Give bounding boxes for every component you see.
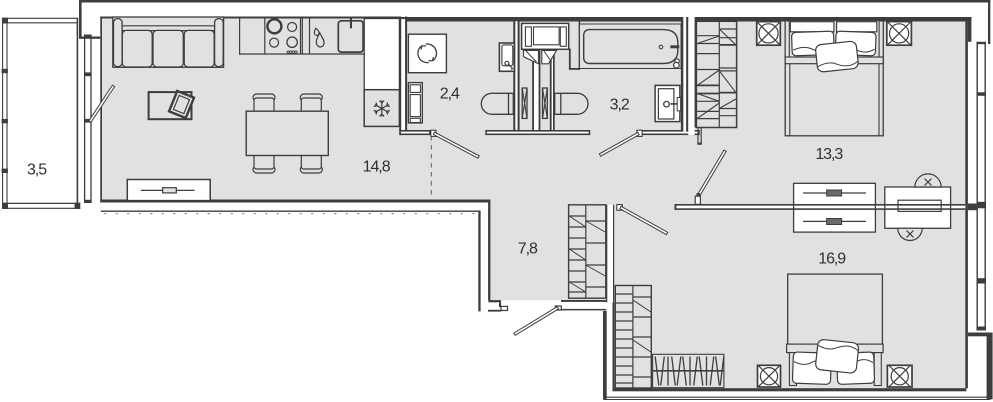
svg-text:3,5: 3,5 bbox=[27, 162, 47, 179]
svg-text:13,3: 13,3 bbox=[815, 146, 843, 163]
svg-text:14,8: 14,8 bbox=[363, 158, 391, 175]
svg-text:16,9: 16,9 bbox=[818, 251, 846, 268]
svg-text:2,4: 2,4 bbox=[440, 86, 460, 103]
svg-text:3,2: 3,2 bbox=[610, 97, 630, 114]
svg-text:7,8: 7,8 bbox=[518, 240, 538, 257]
